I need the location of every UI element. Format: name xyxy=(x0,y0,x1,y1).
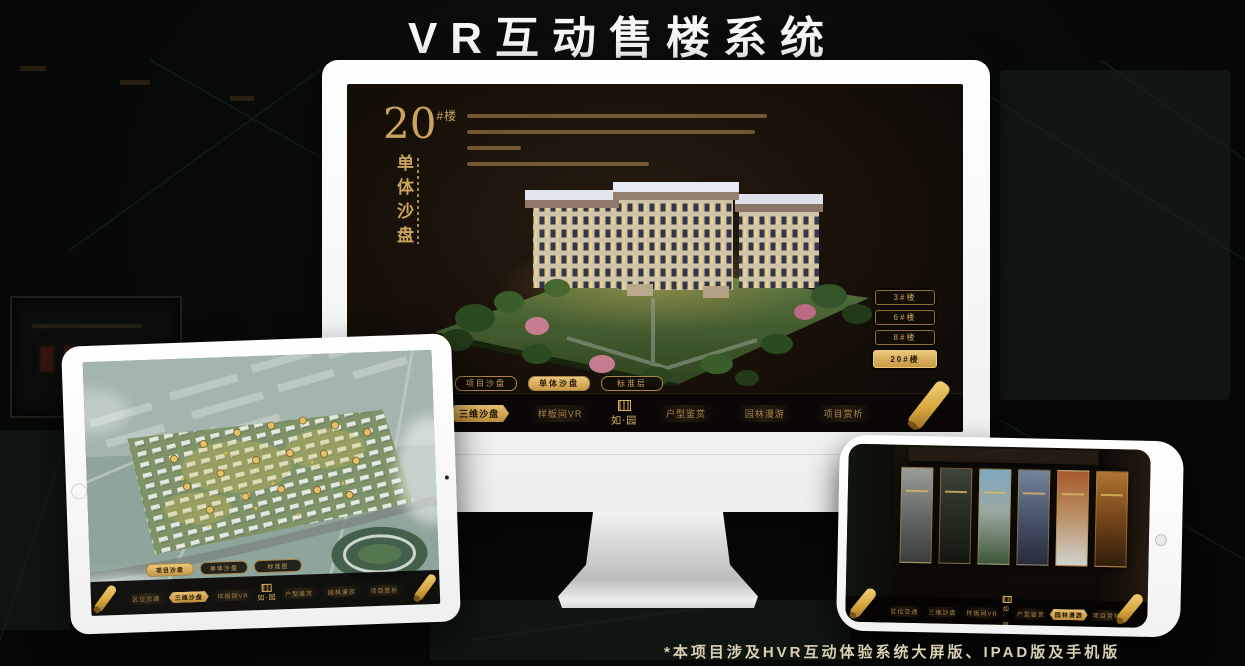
nav-item-floorplans[interactable]: 户型鉴赏 xyxy=(1012,603,1050,622)
view-tabs: 项目沙盘 单体沙盘 标准层 xyxy=(455,376,663,391)
building-button-8[interactable]: 8#楼 xyxy=(875,330,935,345)
nav-item-garden-tour[interactable]: 园林漫游 xyxy=(321,581,362,600)
nav-item-project-gallery[interactable]: 项目赏析 xyxy=(814,404,874,422)
phone-device: 区位交通 三维沙盘 样板间VR 如·园 户型鉴赏 园林漫游 项目赏析 xyxy=(836,434,1184,637)
nav-item-location[interactable]: 区位交通 xyxy=(885,600,923,619)
page-title: VR互动售楼系统 xyxy=(0,2,1245,66)
ruyuan-logo: 如·园 xyxy=(611,400,637,427)
scene-panel-6[interactable] xyxy=(1094,471,1128,568)
nav-item-garden-tour[interactable]: 园林漫游 xyxy=(735,404,795,422)
tablet-tab-single-sandbox[interactable]: 单体沙盘 xyxy=(200,561,248,576)
poster-stage: VR互动售楼系统 20#楼 单体沙盘 xyxy=(0,0,1245,666)
nav-item-location[interactable]: 区位交通 xyxy=(126,587,167,606)
scroll-icon-left[interactable] xyxy=(93,584,118,614)
tablet-screen: 项目沙盘 单体沙盘 标准层 区位交通 三维沙盘 样板间VR 如·园 户型鉴赏 园… xyxy=(83,350,441,616)
building-selector: 3#楼 6#楼 8#楼 20#楼 xyxy=(873,290,937,368)
tablet-tab-project-sandbox[interactable]: 项目沙盘 xyxy=(146,562,194,577)
tab-standard-floor[interactable]: 标准层 xyxy=(601,376,663,391)
nav-item-floorplans[interactable]: 户型鉴赏 xyxy=(656,404,716,422)
seal-icon xyxy=(262,583,272,591)
nav-item-sandbox[interactable]: 三维沙盘 xyxy=(923,601,961,620)
building-button-20[interactable]: 20#楼 xyxy=(873,350,937,368)
seal-icon xyxy=(618,400,631,411)
scroll-icon[interactable] xyxy=(906,379,952,431)
scene-panel-1[interactable] xyxy=(899,467,933,564)
floor-suffix: #楼 xyxy=(436,109,457,123)
nav-item-sandbox[interactable]: 三维沙盘 xyxy=(168,586,209,605)
nav-item-showroom-vr[interactable]: 样板间VR xyxy=(528,404,593,422)
ruyuan-logo: 如·园 xyxy=(1002,595,1012,628)
tab-single-sandbox[interactable]: 单体沙盘 xyxy=(528,376,590,391)
building-button-3[interactable]: 3#楼 xyxy=(875,290,935,305)
ruyuan-logo: 如·园 xyxy=(257,583,277,603)
nav-item-floorplans[interactable]: 户型鉴赏 xyxy=(279,582,320,601)
footnote: *本项目涉及HVR互动体验系统大屏版、IPAD版及手机版 xyxy=(664,641,1120,662)
tab-project-sandbox[interactable]: 项目沙盘 xyxy=(455,376,517,391)
building-button-6[interactable]: 6#楼 xyxy=(875,310,935,325)
section-title-vertical: 单体沙盘 xyxy=(391,154,416,250)
building-render[interactable] xyxy=(417,136,887,386)
scene-panel-2[interactable] xyxy=(938,468,972,565)
nav-item-showroom-vr[interactable]: 样板间VR xyxy=(211,584,255,604)
scroll-icon-right[interactable] xyxy=(413,573,438,603)
scene-panel-3[interactable] xyxy=(977,468,1011,565)
scene-panel-4[interactable] xyxy=(1016,469,1050,566)
courtyard-lintel xyxy=(909,447,1099,465)
monitor-stand xyxy=(558,512,758,608)
nav-item-sandbox[interactable]: 三维沙盘 xyxy=(449,404,509,422)
nav-item-garden-tour[interactable]: 园林漫游 xyxy=(1050,604,1088,623)
tablet-device: 项目沙盘 单体沙盘 标准层 区位交通 三维沙盘 样板间VR 如·园 户型鉴赏 园… xyxy=(61,333,461,634)
seal-icon xyxy=(1003,595,1012,602)
tablet-tab-standard-floor[interactable]: 标准层 xyxy=(254,559,302,574)
scene-panel-5[interactable] xyxy=(1055,470,1089,567)
nav-item-showroom-vr[interactable]: 样板间VR xyxy=(961,602,1003,621)
scene-panels xyxy=(899,467,1128,568)
nav-item-project-gallery[interactable]: 项目赏析 xyxy=(364,579,405,598)
phone-screen: 区位交通 三维沙盘 样板间VR 如·园 户型鉴赏 园林漫游 项目赏析 xyxy=(845,444,1151,628)
